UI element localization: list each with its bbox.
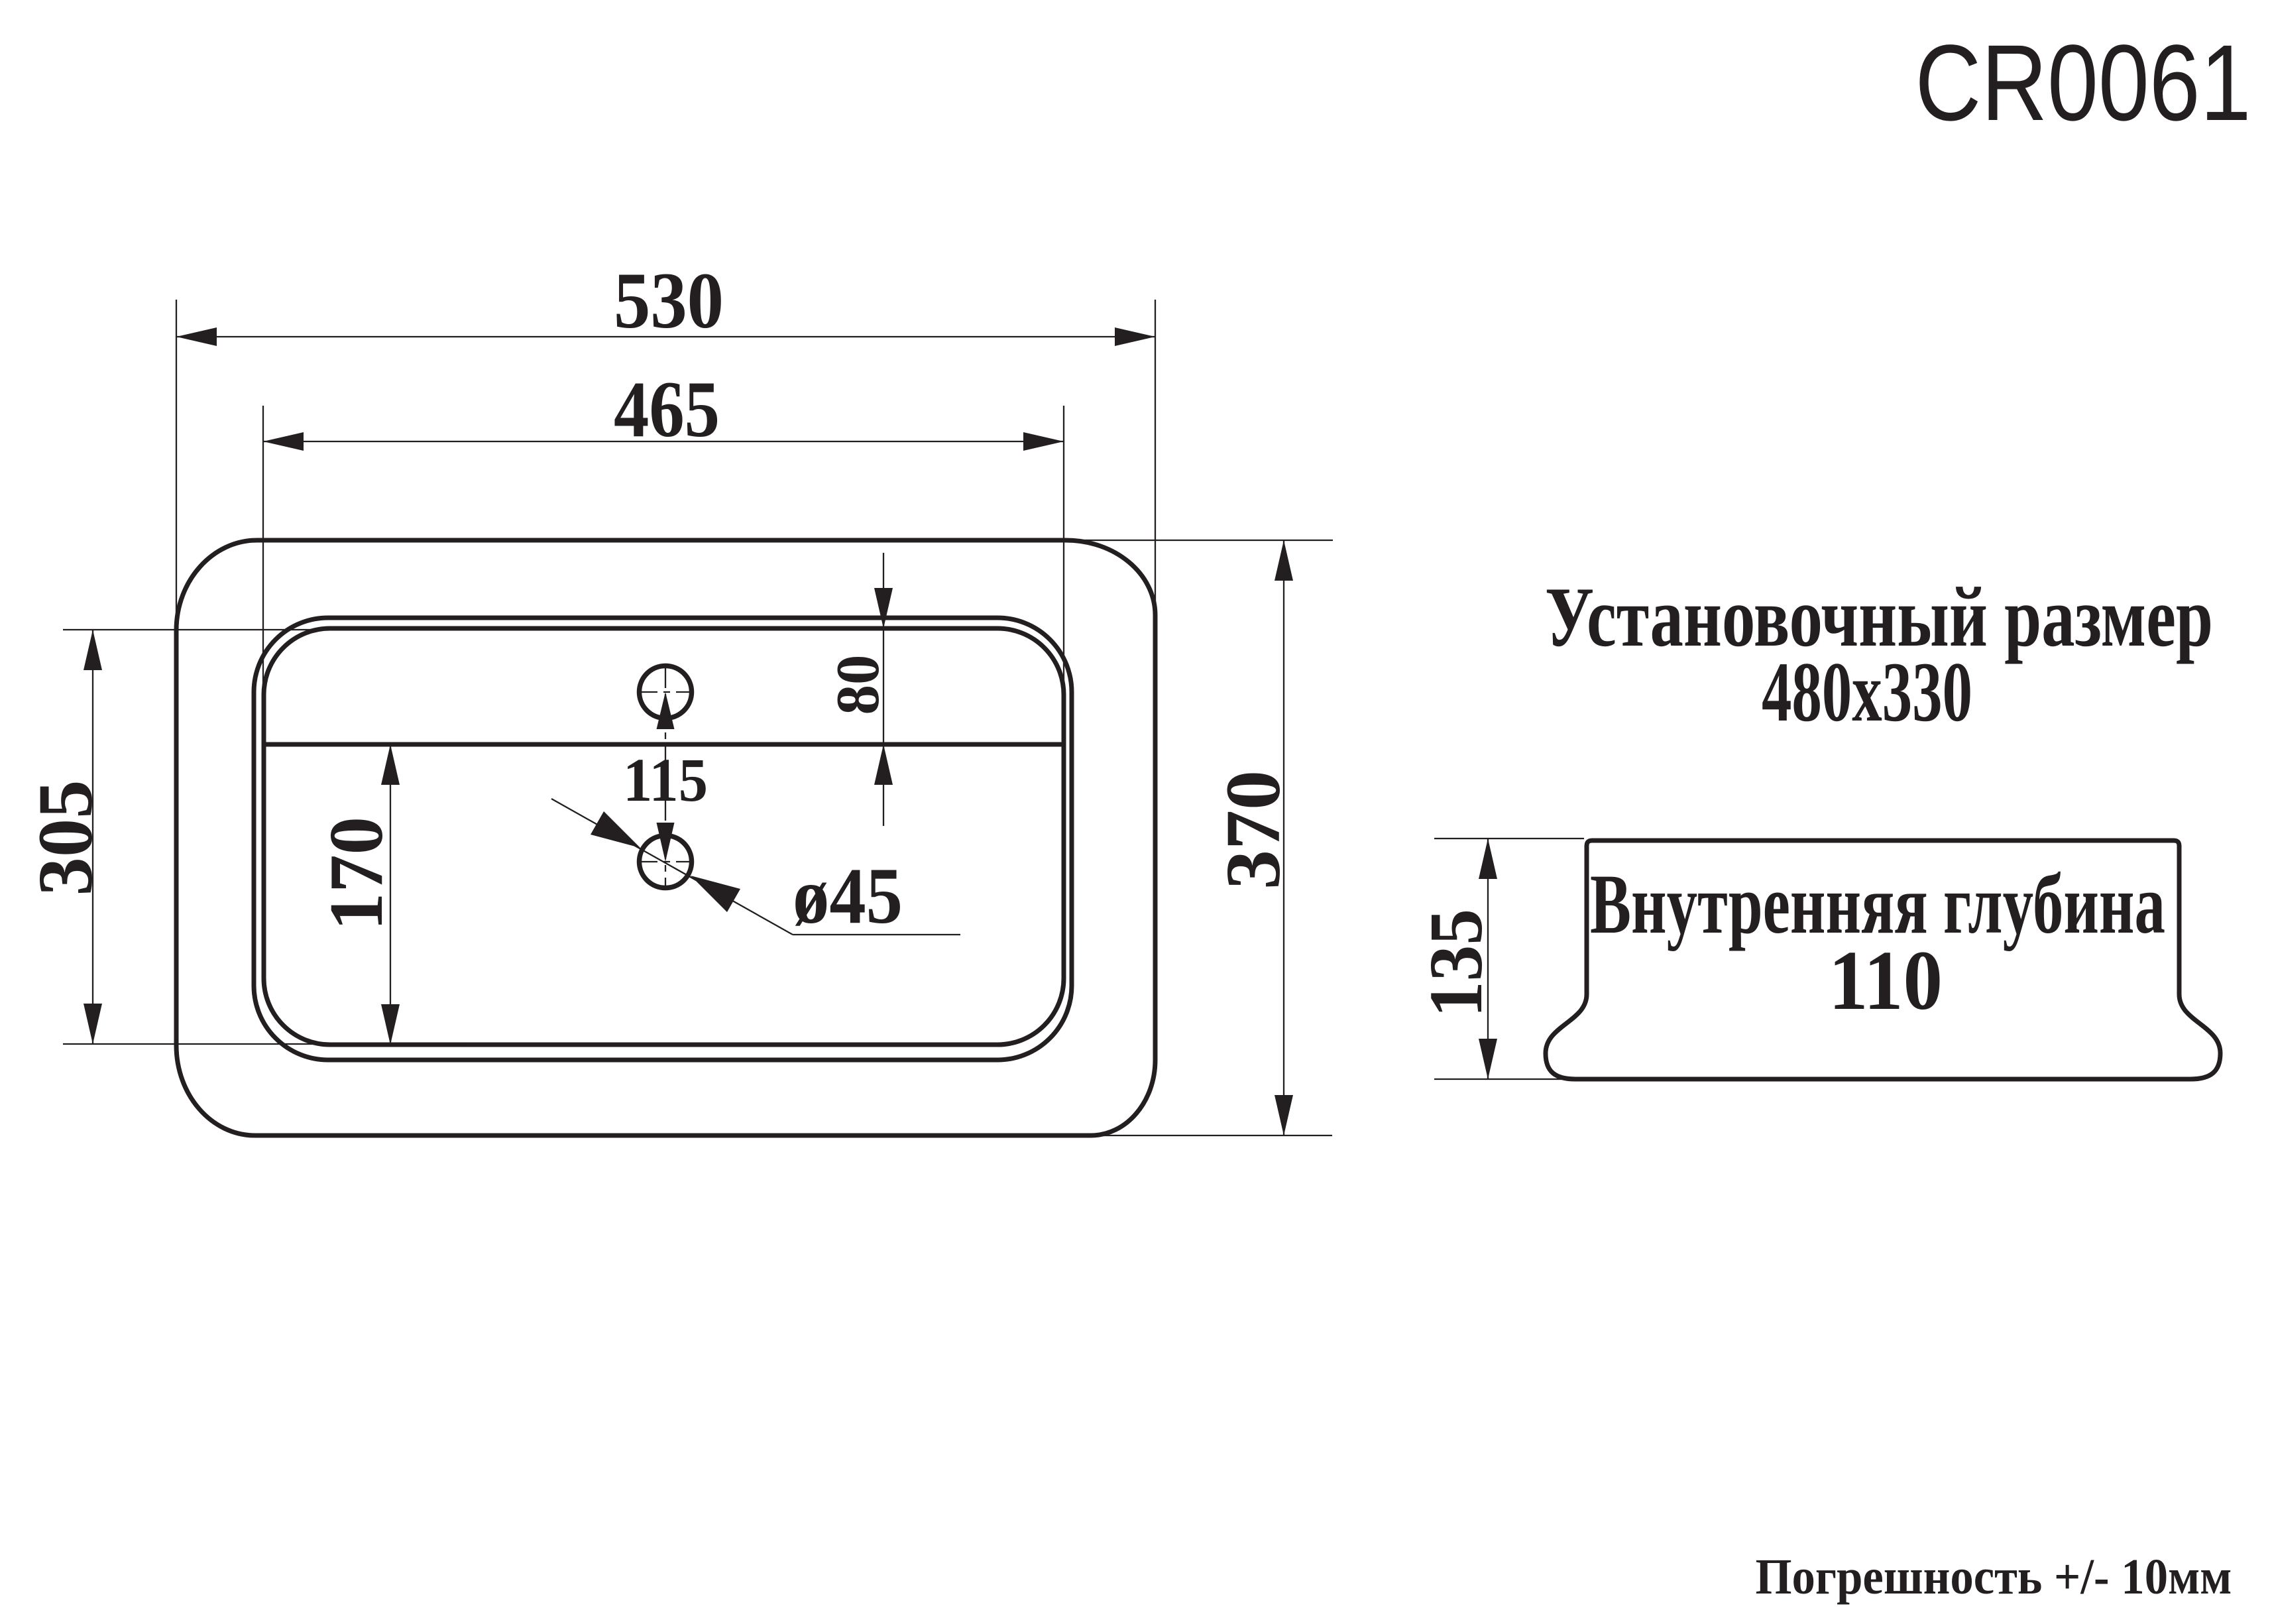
- svg-text:80: 80: [824, 655, 891, 715]
- svg-text:170: 170: [314, 817, 398, 931]
- svg-text:370: 370: [1210, 770, 1296, 890]
- svg-text:305: 305: [22, 780, 109, 896]
- svg-text:Погрешность +/- 10мм: Погрешность +/- 10мм: [1756, 1549, 2232, 1605]
- svg-text:CR0061: CR0061: [1915, 22, 2251, 143]
- svg-text:ø45: ø45: [793, 852, 903, 941]
- svg-text:480x330: 480x330: [1762, 644, 1972, 739]
- svg-text:465: 465: [614, 365, 720, 454]
- svg-text:115: 115: [623, 746, 708, 815]
- svg-text:110: 110: [1829, 933, 1943, 1027]
- svg-text:135: 135: [1414, 909, 1498, 1017]
- svg-text:530: 530: [614, 257, 724, 345]
